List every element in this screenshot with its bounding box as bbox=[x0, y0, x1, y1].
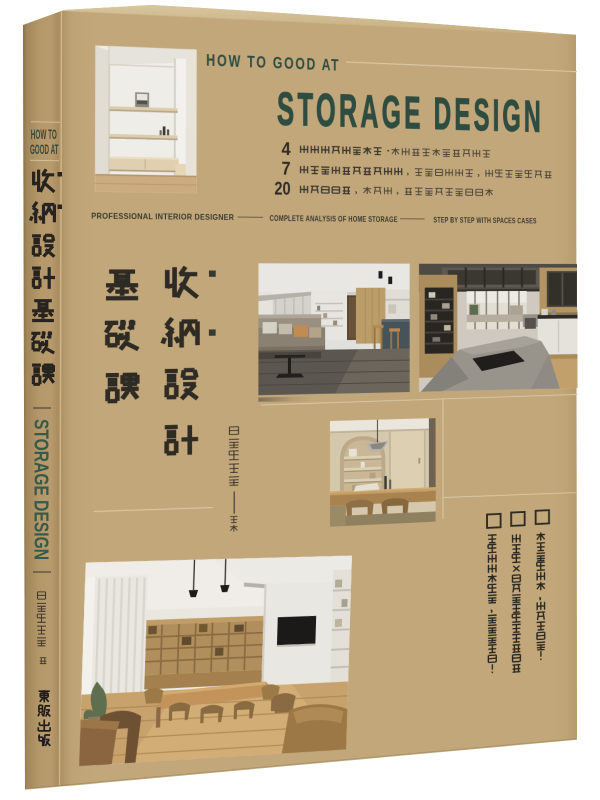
svg-text:GOOD AT: GOOD AT bbox=[30, 141, 59, 157]
svg-text:HOW TO: HOW TO bbox=[31, 126, 57, 142]
svg-text:STORAGE DESIGN: STORAGE DESIGN bbox=[30, 419, 52, 560]
